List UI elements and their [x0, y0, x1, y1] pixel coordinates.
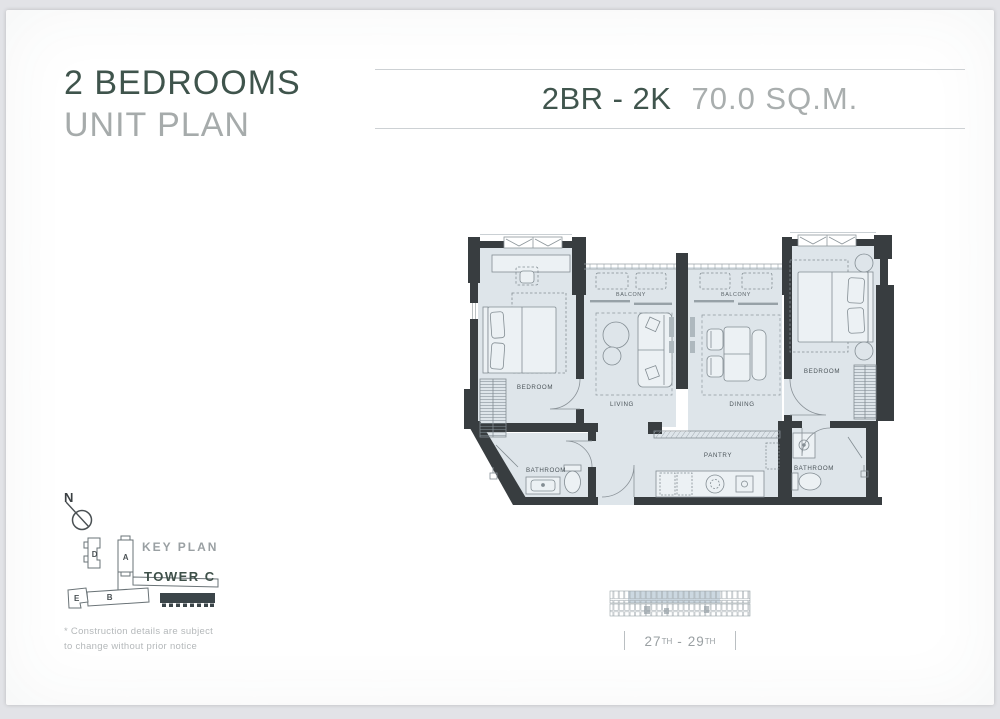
floor-range-tick-right	[735, 631, 736, 650]
building-label-a: A	[123, 553, 129, 562]
floor-plan-drawing: BEDROOM BALCONY BALCONY BEDROOM LIVING D…	[450, 215, 910, 515]
sofa-icon	[638, 313, 672, 387]
wardrobe-right-icon	[854, 365, 876, 419]
toilet-left-icon	[564, 465, 581, 493]
room-label-bathroom-left: BATHROOM	[526, 467, 566, 474]
compass-icon: N	[64, 490, 92, 530]
room-label-balcony-left: BALCONY	[616, 292, 646, 298]
floor-plan: BEDROOM BALCONY BALCONY BEDROOM LIVING D…	[450, 215, 910, 515]
unit-area: 70.0 SQ.M.	[691, 81, 858, 117]
room-label-pantry: PANTRY	[704, 452, 732, 459]
floor-from: 27	[645, 634, 662, 649]
floor-range-tick-left	[624, 631, 625, 650]
floor-range-separator: -	[677, 634, 683, 649]
floor-range-label: 27TH - 29TH	[608, 631, 752, 651]
room-label-balcony-right: BALCONY	[721, 292, 751, 298]
floor-from-ordinal: TH	[662, 637, 673, 646]
building-label-b: B	[107, 593, 113, 602]
compass-north-label: N	[64, 490, 74, 505]
wardrobe-left-icon	[480, 379, 506, 437]
room-label-dining: DINING	[729, 401, 754, 408]
unit-code: 2BR - 2K	[542, 81, 672, 117]
floor-range-diagram: 27TH - 29TH	[608, 588, 752, 651]
room-label-bedroom-left: BEDROOM	[517, 384, 553, 391]
tower-label: TOWER C	[144, 569, 216, 584]
room-label-bathroom-right: BATHROOM	[794, 465, 834, 472]
key-plan-title: KEY PLAN	[142, 540, 218, 554]
page-title: 2 BEDROOMS UNIT PLAN	[64, 62, 301, 146]
page-title-line2: UNIT PLAN	[64, 104, 301, 146]
tower-c-highlight	[160, 593, 215, 607]
sink-left-icon	[526, 477, 560, 494]
key-plan: N D A B E KEY PL	[52, 484, 224, 616]
disclaimer-line2: to change without prior notice	[64, 639, 213, 654]
disclaimer-line1: * Construction details are subject	[64, 624, 213, 639]
page-title-line1: 2 BEDROOMS	[64, 62, 301, 104]
floor-to-ordinal: TH	[705, 637, 716, 646]
building-label-d: D	[92, 550, 98, 559]
key-plan-drawing: N D A B E KEY PL	[52, 484, 224, 616]
unit-header: 2BR - 2K 70.0 SQ.M.	[375, 69, 965, 129]
floor-to: 29	[688, 634, 705, 649]
building-section-icon	[608, 588, 752, 620]
disclaimer: * Construction details are subject to ch…	[64, 624, 213, 654]
room-label-bedroom-right: BEDROOM	[804, 368, 840, 375]
dining-table-icon	[724, 327, 750, 381]
room-label-living: LIVING	[610, 401, 634, 408]
brochure-page: 2 BEDROOMS UNIT PLAN 2BR - 2K 70.0 SQ.M.	[0, 0, 1000, 719]
toilet-right-icon	[792, 473, 821, 490]
building-label-e: E	[74, 594, 80, 603]
